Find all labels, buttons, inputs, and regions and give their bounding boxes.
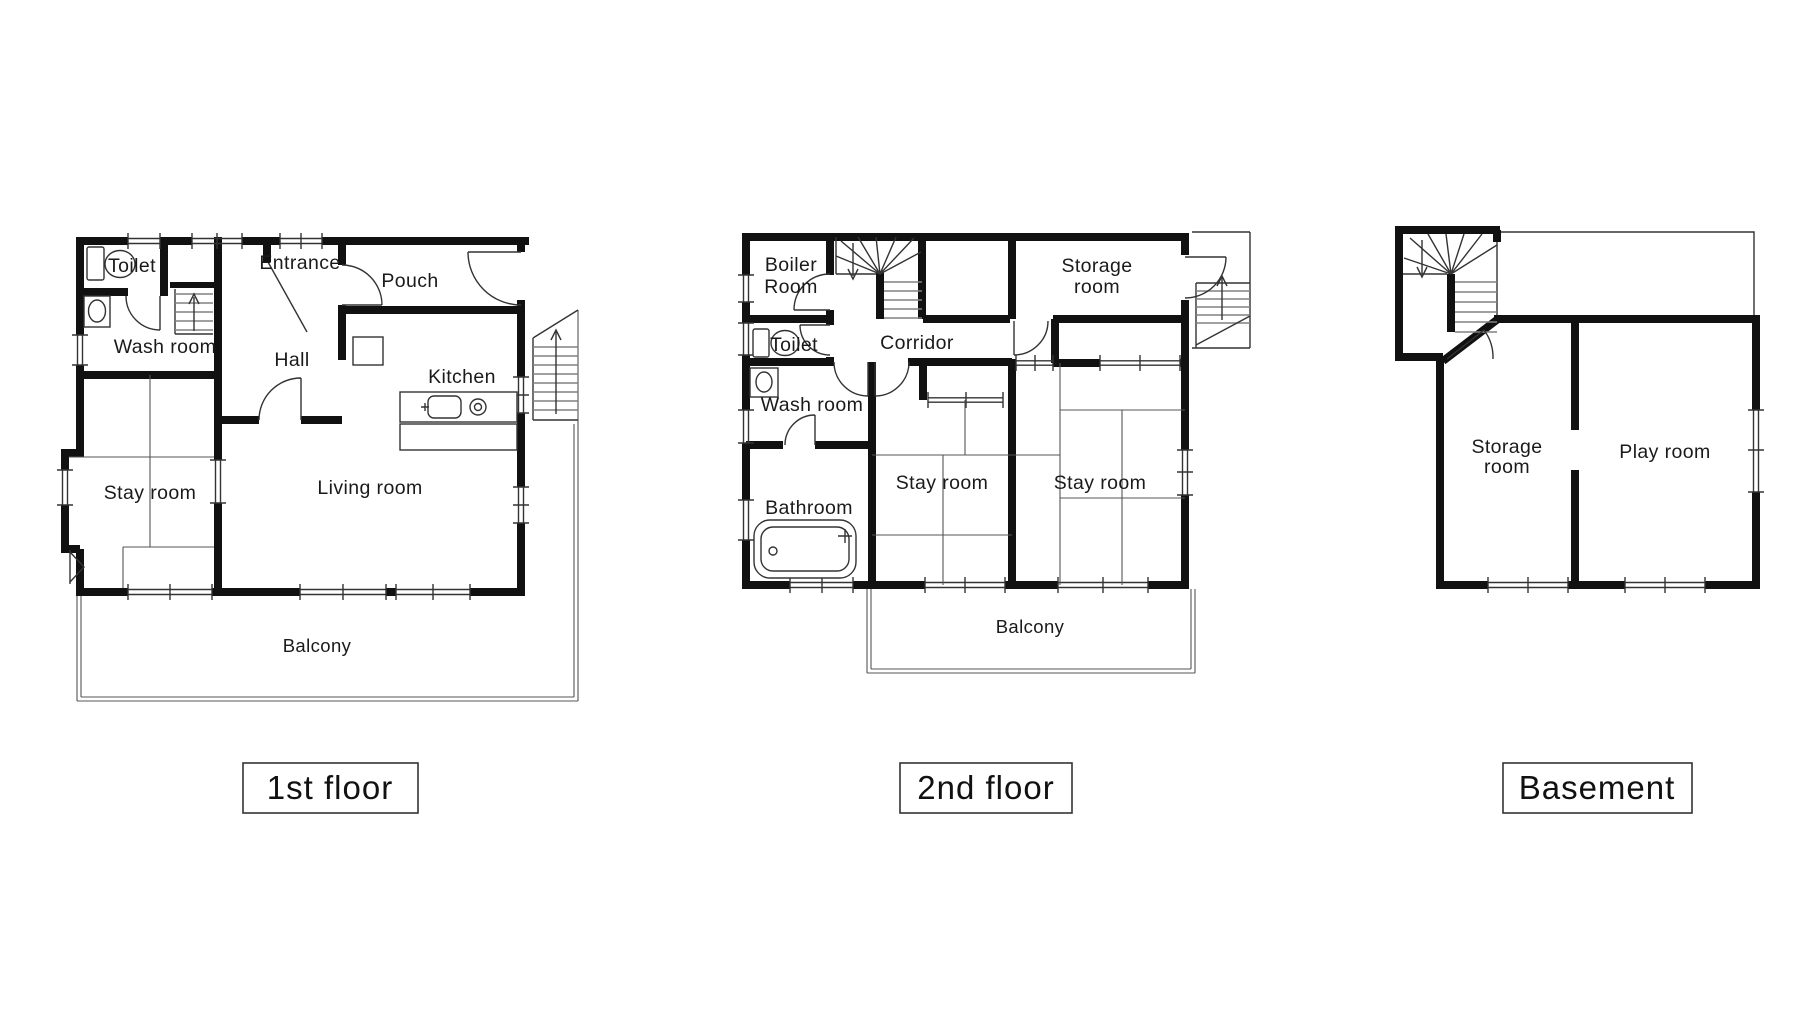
room-label-toilet-1f: Toilet xyxy=(108,255,156,277)
floor-title-first-label: 1st floor xyxy=(267,769,393,806)
upper-floor-outline xyxy=(1500,232,1754,317)
room-label-storage-basement-line1: Storage xyxy=(1471,436,1542,458)
walls-basement xyxy=(1395,226,1760,589)
room-label-boiler-line2: Room xyxy=(764,276,818,298)
doors-2f xyxy=(785,257,1226,445)
exterior-staircase-icon-1f xyxy=(533,310,578,420)
room-label-storage-basement-line2: room xyxy=(1484,456,1530,478)
room-label-kitchen: Kitchen xyxy=(428,366,496,388)
second-floor-plan: Boiler Room Toilet Corridor Wash room Ba… xyxy=(738,232,1250,673)
kitchen-counter-icon xyxy=(400,392,517,450)
staircase-icon-1f xyxy=(175,289,213,334)
refrigerator-icon xyxy=(353,337,383,365)
floor-plan-sheet: Toilet Wash room Entrance Hall Pouch Kit… xyxy=(0,0,1800,1013)
basement-plan: Storage room Play room xyxy=(1395,226,1764,593)
room-label-play-room: Play room xyxy=(1619,441,1710,463)
room-label-storage-2f-line2: room xyxy=(1074,276,1120,298)
floor-title-second: 2nd floor xyxy=(900,763,1072,813)
room-label-entrance: Entrance xyxy=(259,252,340,274)
room-label-bathroom: Bathroom xyxy=(765,497,853,519)
stove-burner-icon xyxy=(470,399,486,415)
room-label-stay-room-left: Stay room xyxy=(896,472,988,494)
floor-title-first: 1st floor xyxy=(243,763,418,813)
floor-title-second-label: 2nd floor xyxy=(917,769,1054,806)
exterior-staircase-icon-2f xyxy=(1192,232,1250,348)
stair-up-arrow-icon xyxy=(1217,276,1227,320)
kitchen-sink-icon xyxy=(428,396,461,418)
room-label-hall: Hall xyxy=(274,349,309,371)
floor-title-basement: Basement xyxy=(1503,763,1692,813)
room-label-storage-2f-line1: Storage xyxy=(1061,255,1132,277)
room-label-corridor: Corridor xyxy=(880,332,954,354)
room-label-pouch: Pouch xyxy=(381,270,438,292)
wash-sink-icon-2f xyxy=(750,368,778,397)
room-label-stay-room-right: Stay room xyxy=(1054,472,1146,494)
room-label-living-room: Living room xyxy=(317,477,422,499)
room-label-wash-room-2f: Wash room xyxy=(761,394,864,416)
room-label-stay-room-1f: Stay room xyxy=(104,482,196,504)
floor-title-basement-label: Basement xyxy=(1519,769,1676,806)
first-floor-plan: Toilet Wash room Entrance Hall Pouch Kit… xyxy=(57,233,578,701)
room-label-boiler-line1: Boiler xyxy=(765,254,817,276)
room-label-toilet-2f: Toilet xyxy=(770,334,818,356)
wash-sink-icon xyxy=(84,296,110,327)
room-label-balcony-2f: Balcony xyxy=(996,616,1065,637)
floor-plan-drawing: Toilet Wash room Entrance Hall Pouch Kit… xyxy=(0,0,1800,1013)
room-label-wash-room-1f: Wash room xyxy=(114,336,217,358)
room-label-balcony-1f: Balcony xyxy=(283,635,352,656)
bathtub-icon xyxy=(754,520,856,578)
